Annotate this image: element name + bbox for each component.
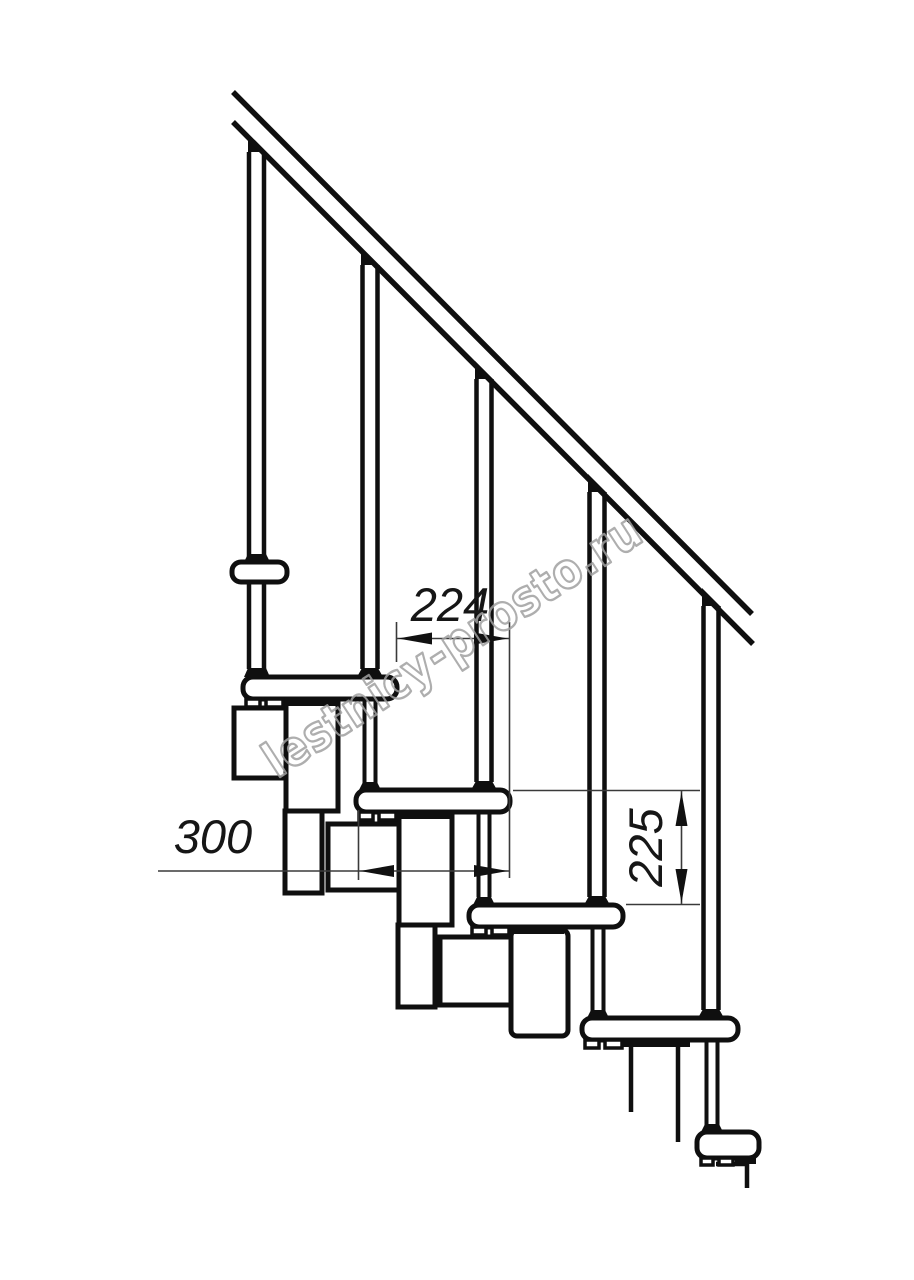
baluster-1	[244, 134, 270, 677]
connector-lug	[585, 1040, 599, 1048]
tread	[356, 790, 510, 812]
module-box	[511, 930, 568, 1036]
connector-lug	[701, 1158, 713, 1165]
staircase-side-view-drawing: 224 300 225 lestnicy-prosto.ru	[0, 0, 914, 1280]
connector-lug	[492, 927, 509, 935]
connector-lug	[266, 699, 283, 707]
connector-lug	[246, 699, 260, 707]
handrail-bracket	[232, 562, 287, 582]
connector-bar	[735, 1157, 756, 1164]
connector-bar	[395, 812, 450, 819]
baluster-foot	[698, 1009, 724, 1018]
staircase-drawing-page: 224 300 225 lestnicy-prosto.ru	[0, 0, 914, 1280]
module-box	[399, 814, 452, 925]
baluster-foot	[244, 668, 270, 677]
floor-bracket	[697, 1132, 759, 1158]
baluster-3	[471, 361, 497, 790]
dimension-label-300: 300	[174, 810, 252, 863]
connector-lug	[472, 927, 486, 935]
module-box	[285, 811, 322, 893]
baluster-segment	[701, 1040, 723, 1132]
tread	[469, 905, 623, 927]
baluster-segment	[587, 927, 609, 1018]
baluster-foot	[471, 781, 497, 790]
module-box	[398, 925, 435, 1007]
connector-lug	[379, 812, 396, 820]
connector-lug	[605, 1040, 622, 1048]
connector-bar	[622, 1040, 690, 1047]
module-box	[440, 937, 517, 1005]
connector-bar	[508, 927, 564, 934]
connector-lug	[359, 812, 373, 820]
baluster-segment	[473, 812, 495, 905]
module-box	[328, 824, 405, 890]
baluster-5	[698, 588, 724, 1018]
dimension-label-225: 225	[619, 807, 672, 887]
baluster-foot	[584, 896, 610, 905]
watermark-text: lestnicy-prosto.ru	[252, 502, 652, 789]
floor-step-line	[716, 1164, 747, 1188]
arrow-up-icon	[676, 792, 688, 826]
baluster-2	[357, 247, 383, 677]
tread	[582, 1018, 738, 1040]
connector-lug	[719, 1158, 733, 1165]
arrow-down-icon	[676, 869, 688, 903]
